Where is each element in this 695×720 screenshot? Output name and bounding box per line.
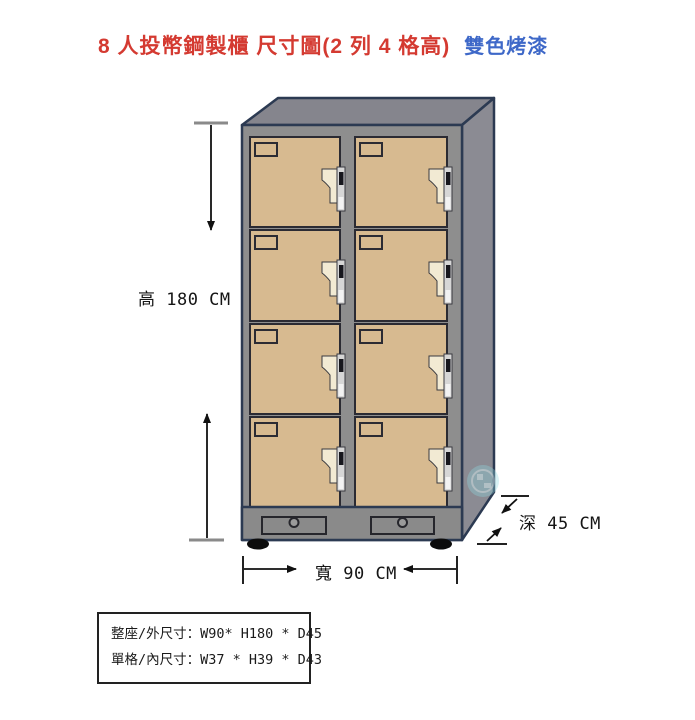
page: 8 人投幣鋼製櫃 尺寸圖(2 列 4 格高)雙色烤漆: [0, 0, 695, 720]
drawer-lock-icon: [290, 518, 299, 527]
spec-overall-size: 整座/外尺寸：W90* H180 * D45: [111, 621, 301, 647]
cabinet-foot: [247, 539, 269, 550]
cabinet-foot: [430, 539, 452, 550]
watermark: [467, 465, 499, 497]
depth-label: 深 45 CM: [519, 509, 601, 534]
spec-cell-size: 單格/內尺寸：W37 * H39 * D43: [111, 647, 301, 673]
drawer-lock-icon: [398, 518, 407, 527]
height-dimension: [189, 123, 228, 540]
depth-arrow-downleft: [502, 499, 517, 513]
spec-box: 整座/外尺寸：W90* H180 * D45 單格/內尺寸：W37 * H39 …: [97, 612, 311, 684]
cabinet-base: [242, 507, 462, 540]
depth-arrow-upright: [487, 528, 501, 541]
height-label: 高 180 CM: [138, 285, 231, 310]
width-label: 寬 90 CM: [315, 559, 397, 584]
cabinet-top-face: [242, 98, 494, 125]
